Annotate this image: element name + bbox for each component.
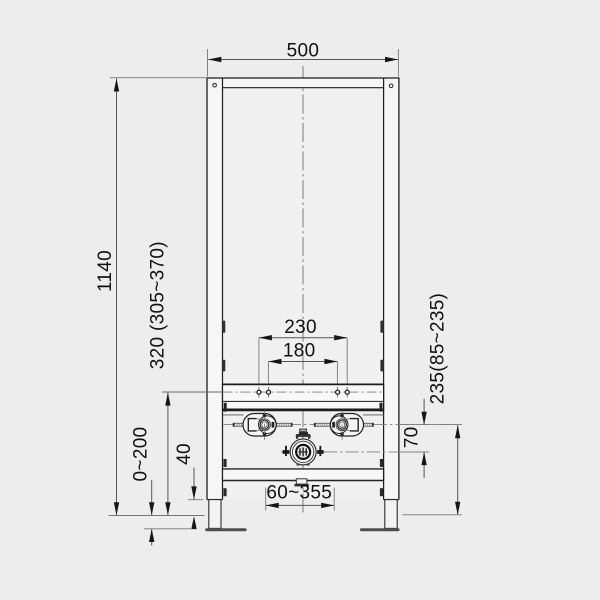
- svg-text:320 (305~370): 320 (305~370): [148, 241, 169, 369]
- svg-text:235(85~235): 235(85~235): [428, 293, 449, 405]
- svg-text:70: 70: [402, 427, 423, 449]
- svg-text:180: 180: [283, 341, 316, 362]
- svg-text:230: 230: [284, 317, 317, 338]
- svg-text:0~200: 0~200: [130, 427, 151, 482]
- svg-text:1140: 1140: [95, 250, 116, 292]
- svg-text:40: 40: [174, 443, 195, 465]
- svg-text:60~355: 60~355: [266, 482, 332, 503]
- svg-text:500: 500: [287, 41, 320, 62]
